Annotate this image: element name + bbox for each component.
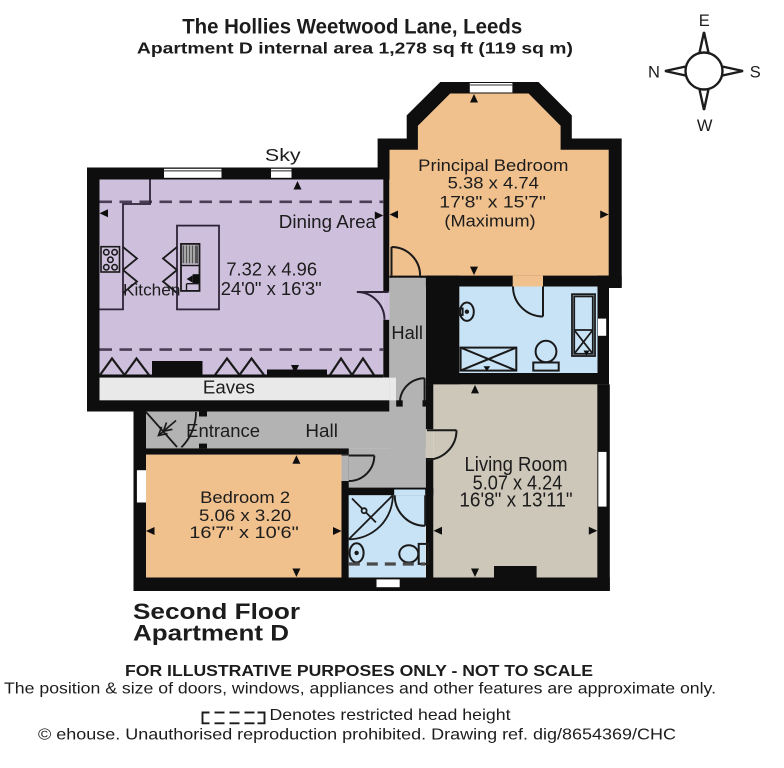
svg-text:Principal Bedroom: Principal Bedroom — [418, 156, 568, 175]
svg-text:E: E — [699, 12, 710, 30]
svg-text:Hall: Hall — [305, 421, 338, 441]
svg-text:W: W — [697, 117, 713, 135]
svg-text:© ehouse. Unauthorised reprodu: © ehouse. Unauthorised reproduction proh… — [38, 726, 676, 743]
svg-text:Apartment D: Apartment D — [133, 621, 289, 646]
svg-text:Eaves: Eaves — [203, 377, 255, 397]
svg-text:S: S — [750, 63, 761, 81]
svg-text:7.32 x 4.96: 7.32 x 4.96 — [226, 259, 317, 280]
svg-text:5.38 x 4.74: 5.38 x 4.74 — [448, 174, 539, 193]
svg-text:Dining Area: Dining Area — [279, 211, 377, 232]
svg-text:Sky: Sky — [265, 145, 301, 165]
svg-text:16'8" x 13'11": 16'8" x 13'11" — [459, 489, 572, 512]
svg-text:17'8" x 15'7": 17'8" x 15'7" — [439, 192, 546, 211]
svg-text:N: N — [648, 63, 660, 81]
svg-text:Bedroom 2: Bedroom 2 — [200, 489, 290, 507]
svg-text:5.06 x 3.20: 5.06 x 3.20 — [199, 507, 291, 525]
svg-text:Kitchen: Kitchen — [123, 281, 180, 300]
svg-text:Hall: Hall — [391, 323, 423, 343]
svg-text:24'0" x 16'3": 24'0" x 16'3" — [221, 278, 322, 299]
svg-text:Entrance: Entrance — [186, 421, 260, 441]
svg-text:The Hollies Weetwood Lane, Lee: The Hollies Weetwood Lane, Leeds — [182, 15, 522, 38]
svg-text:Apartment D internal area 1,27: Apartment D internal area 1,278 sq ft (1… — [137, 41, 573, 58]
svg-text:FOR ILLUSTRATIVE PURPOSES ONLY: FOR ILLUSTRATIVE PURPOSES ONLY - NOT TO … — [125, 663, 593, 680]
svg-text:16'7" x 10'6": 16'7" x 10'6" — [189, 524, 299, 542]
svg-text:Denotes restricted head height: Denotes restricted head height — [270, 707, 512, 724]
svg-text:The position & size of doors,: The position & size of doors, windows, a… — [4, 681, 716, 698]
svg-text:(Maximum): (Maximum) — [444, 211, 535, 230]
